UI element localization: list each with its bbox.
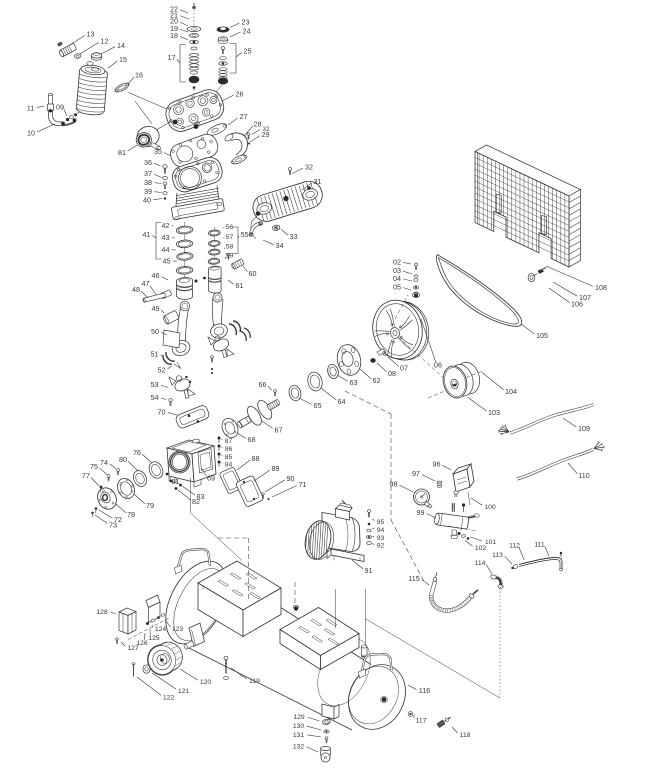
svg-text:120: 120: [200, 679, 212, 686]
svg-text:122: 122: [163, 694, 175, 701]
svg-text:88: 88: [252, 454, 260, 463]
svg-text:42: 42: [162, 221, 170, 230]
svg-text:25: 25: [244, 46, 252, 55]
svg-text:51: 51: [151, 349, 159, 358]
svg-text:34: 34: [276, 241, 284, 250]
svg-text:18: 18: [170, 31, 178, 40]
svg-text:80: 80: [119, 455, 127, 464]
svg-text:55: 55: [241, 230, 249, 239]
svg-text:124: 124: [155, 626, 167, 633]
svg-text:67: 67: [275, 425, 283, 434]
svg-text:92: 92: [377, 542, 385, 549]
svg-text:108: 108: [595, 283, 607, 292]
svg-text:78: 78: [127, 510, 135, 519]
svg-text:31: 31: [314, 177, 322, 186]
svg-text:111: 111: [534, 541, 545, 548]
svg-text:86: 86: [225, 446, 233, 453]
svg-text:48: 48: [132, 285, 140, 294]
svg-text:79: 79: [146, 501, 154, 510]
svg-text:61: 61: [236, 281, 244, 290]
svg-text:49: 49: [152, 304, 160, 313]
svg-text:129: 129: [293, 714, 305, 721]
svg-text:50: 50: [151, 327, 159, 336]
svg-text:91: 91: [365, 566, 373, 575]
svg-text:23: 23: [242, 17, 250, 26]
svg-text:90: 90: [287, 474, 295, 483]
svg-text:113: 113: [492, 552, 503, 559]
svg-text:16: 16: [135, 70, 143, 79]
svg-text:68: 68: [248, 435, 256, 444]
svg-text:81: 81: [172, 477, 180, 486]
svg-text:15: 15: [119, 55, 127, 64]
svg-text:117: 117: [416, 717, 427, 724]
svg-text:40: 40: [143, 195, 151, 204]
svg-text:54: 54: [151, 393, 159, 402]
svg-text:109: 109: [578, 424, 590, 433]
svg-text:05: 05: [393, 282, 401, 291]
svg-text:94: 94: [377, 527, 385, 534]
svg-text:76: 76: [133, 448, 141, 457]
svg-text:10: 10: [27, 128, 35, 137]
svg-text:71: 71: [299, 480, 307, 489]
svg-text:47: 47: [142, 279, 150, 288]
svg-text:89: 89: [272, 464, 280, 473]
svg-text:119: 119: [249, 678, 260, 685]
svg-text:74: 74: [100, 458, 108, 467]
svg-text:73: 73: [109, 520, 117, 529]
svg-text:63: 63: [350, 378, 358, 387]
svg-text:60: 60: [249, 269, 257, 278]
svg-text:99: 99: [417, 508, 425, 517]
svg-text:70: 70: [158, 407, 166, 416]
svg-text:95: 95: [377, 519, 385, 526]
svg-text:28: 28: [254, 119, 262, 128]
svg-text:69: 69: [207, 473, 215, 482]
svg-text:66: 66: [259, 380, 267, 389]
svg-text:93: 93: [377, 535, 385, 542]
svg-text:132: 132: [293, 743, 305, 750]
svg-text:14: 14: [117, 41, 125, 50]
svg-text:17: 17: [168, 53, 176, 62]
svg-text:105: 105: [536, 331, 548, 340]
svg-text:110: 110: [578, 471, 589, 480]
svg-text:45: 45: [163, 256, 171, 265]
svg-text:127: 127: [127, 645, 139, 652]
svg-text:77: 77: [82, 471, 90, 480]
svg-text:26: 26: [236, 89, 244, 98]
svg-text:56: 56: [226, 224, 234, 231]
svg-text:12: 12: [101, 36, 109, 45]
svg-text:100: 100: [484, 504, 496, 511]
svg-text:43: 43: [162, 233, 170, 242]
svg-text:82: 82: [192, 497, 200, 506]
svg-text:46: 46: [152, 271, 160, 280]
svg-text:75: 75: [90, 462, 98, 471]
svg-text:97: 97: [412, 469, 420, 478]
svg-text:87: 87: [225, 438, 233, 445]
svg-text:08: 08: [388, 369, 396, 378]
svg-text:52: 52: [158, 365, 166, 374]
svg-text:118: 118: [460, 732, 471, 739]
svg-text:36: 36: [144, 158, 152, 167]
svg-text:125: 125: [148, 635, 160, 642]
svg-text:44: 44: [162, 245, 170, 254]
svg-text:38: 38: [144, 178, 152, 187]
svg-text:65: 65: [314, 401, 322, 410]
svg-text:62: 62: [373, 376, 381, 385]
svg-text:131: 131: [293, 732, 305, 739]
svg-text:112: 112: [509, 542, 520, 549]
svg-text:114: 114: [475, 560, 486, 567]
svg-text:07: 07: [400, 363, 408, 372]
svg-text:37: 37: [144, 169, 152, 178]
svg-text:09: 09: [56, 102, 64, 111]
svg-text:24: 24: [243, 26, 251, 35]
svg-text:116: 116: [419, 686, 430, 695]
svg-text:11: 11: [27, 103, 34, 112]
svg-text:102: 102: [475, 545, 487, 552]
svg-text:98: 98: [390, 479, 398, 488]
svg-text:13: 13: [87, 29, 95, 38]
svg-text:101: 101: [485, 539, 497, 546]
svg-text:29: 29: [262, 130, 270, 139]
svg-text:27: 27: [240, 112, 248, 121]
svg-text:96: 96: [433, 459, 441, 468]
svg-text:57: 57: [226, 234, 234, 241]
svg-text:130: 130: [293, 723, 305, 730]
svg-text:128: 128: [96, 609, 108, 616]
svg-text:81: 81: [118, 148, 126, 157]
svg-text:123: 123: [172, 626, 184, 633]
svg-text:115: 115: [408, 574, 419, 583]
svg-text:32: 32: [305, 162, 313, 171]
svg-text:103: 103: [488, 408, 500, 417]
svg-text:106: 106: [571, 299, 583, 308]
svg-text:41: 41: [143, 230, 151, 239]
svg-text:104: 104: [505, 387, 517, 396]
svg-text:85: 85: [225, 454, 233, 461]
svg-text:06: 06: [434, 360, 442, 369]
svg-text:53: 53: [151, 380, 159, 389]
svg-text:64: 64: [338, 397, 346, 406]
svg-text:58: 58: [226, 243, 234, 250]
svg-text:33: 33: [290, 232, 298, 241]
svg-text:121: 121: [178, 688, 190, 695]
